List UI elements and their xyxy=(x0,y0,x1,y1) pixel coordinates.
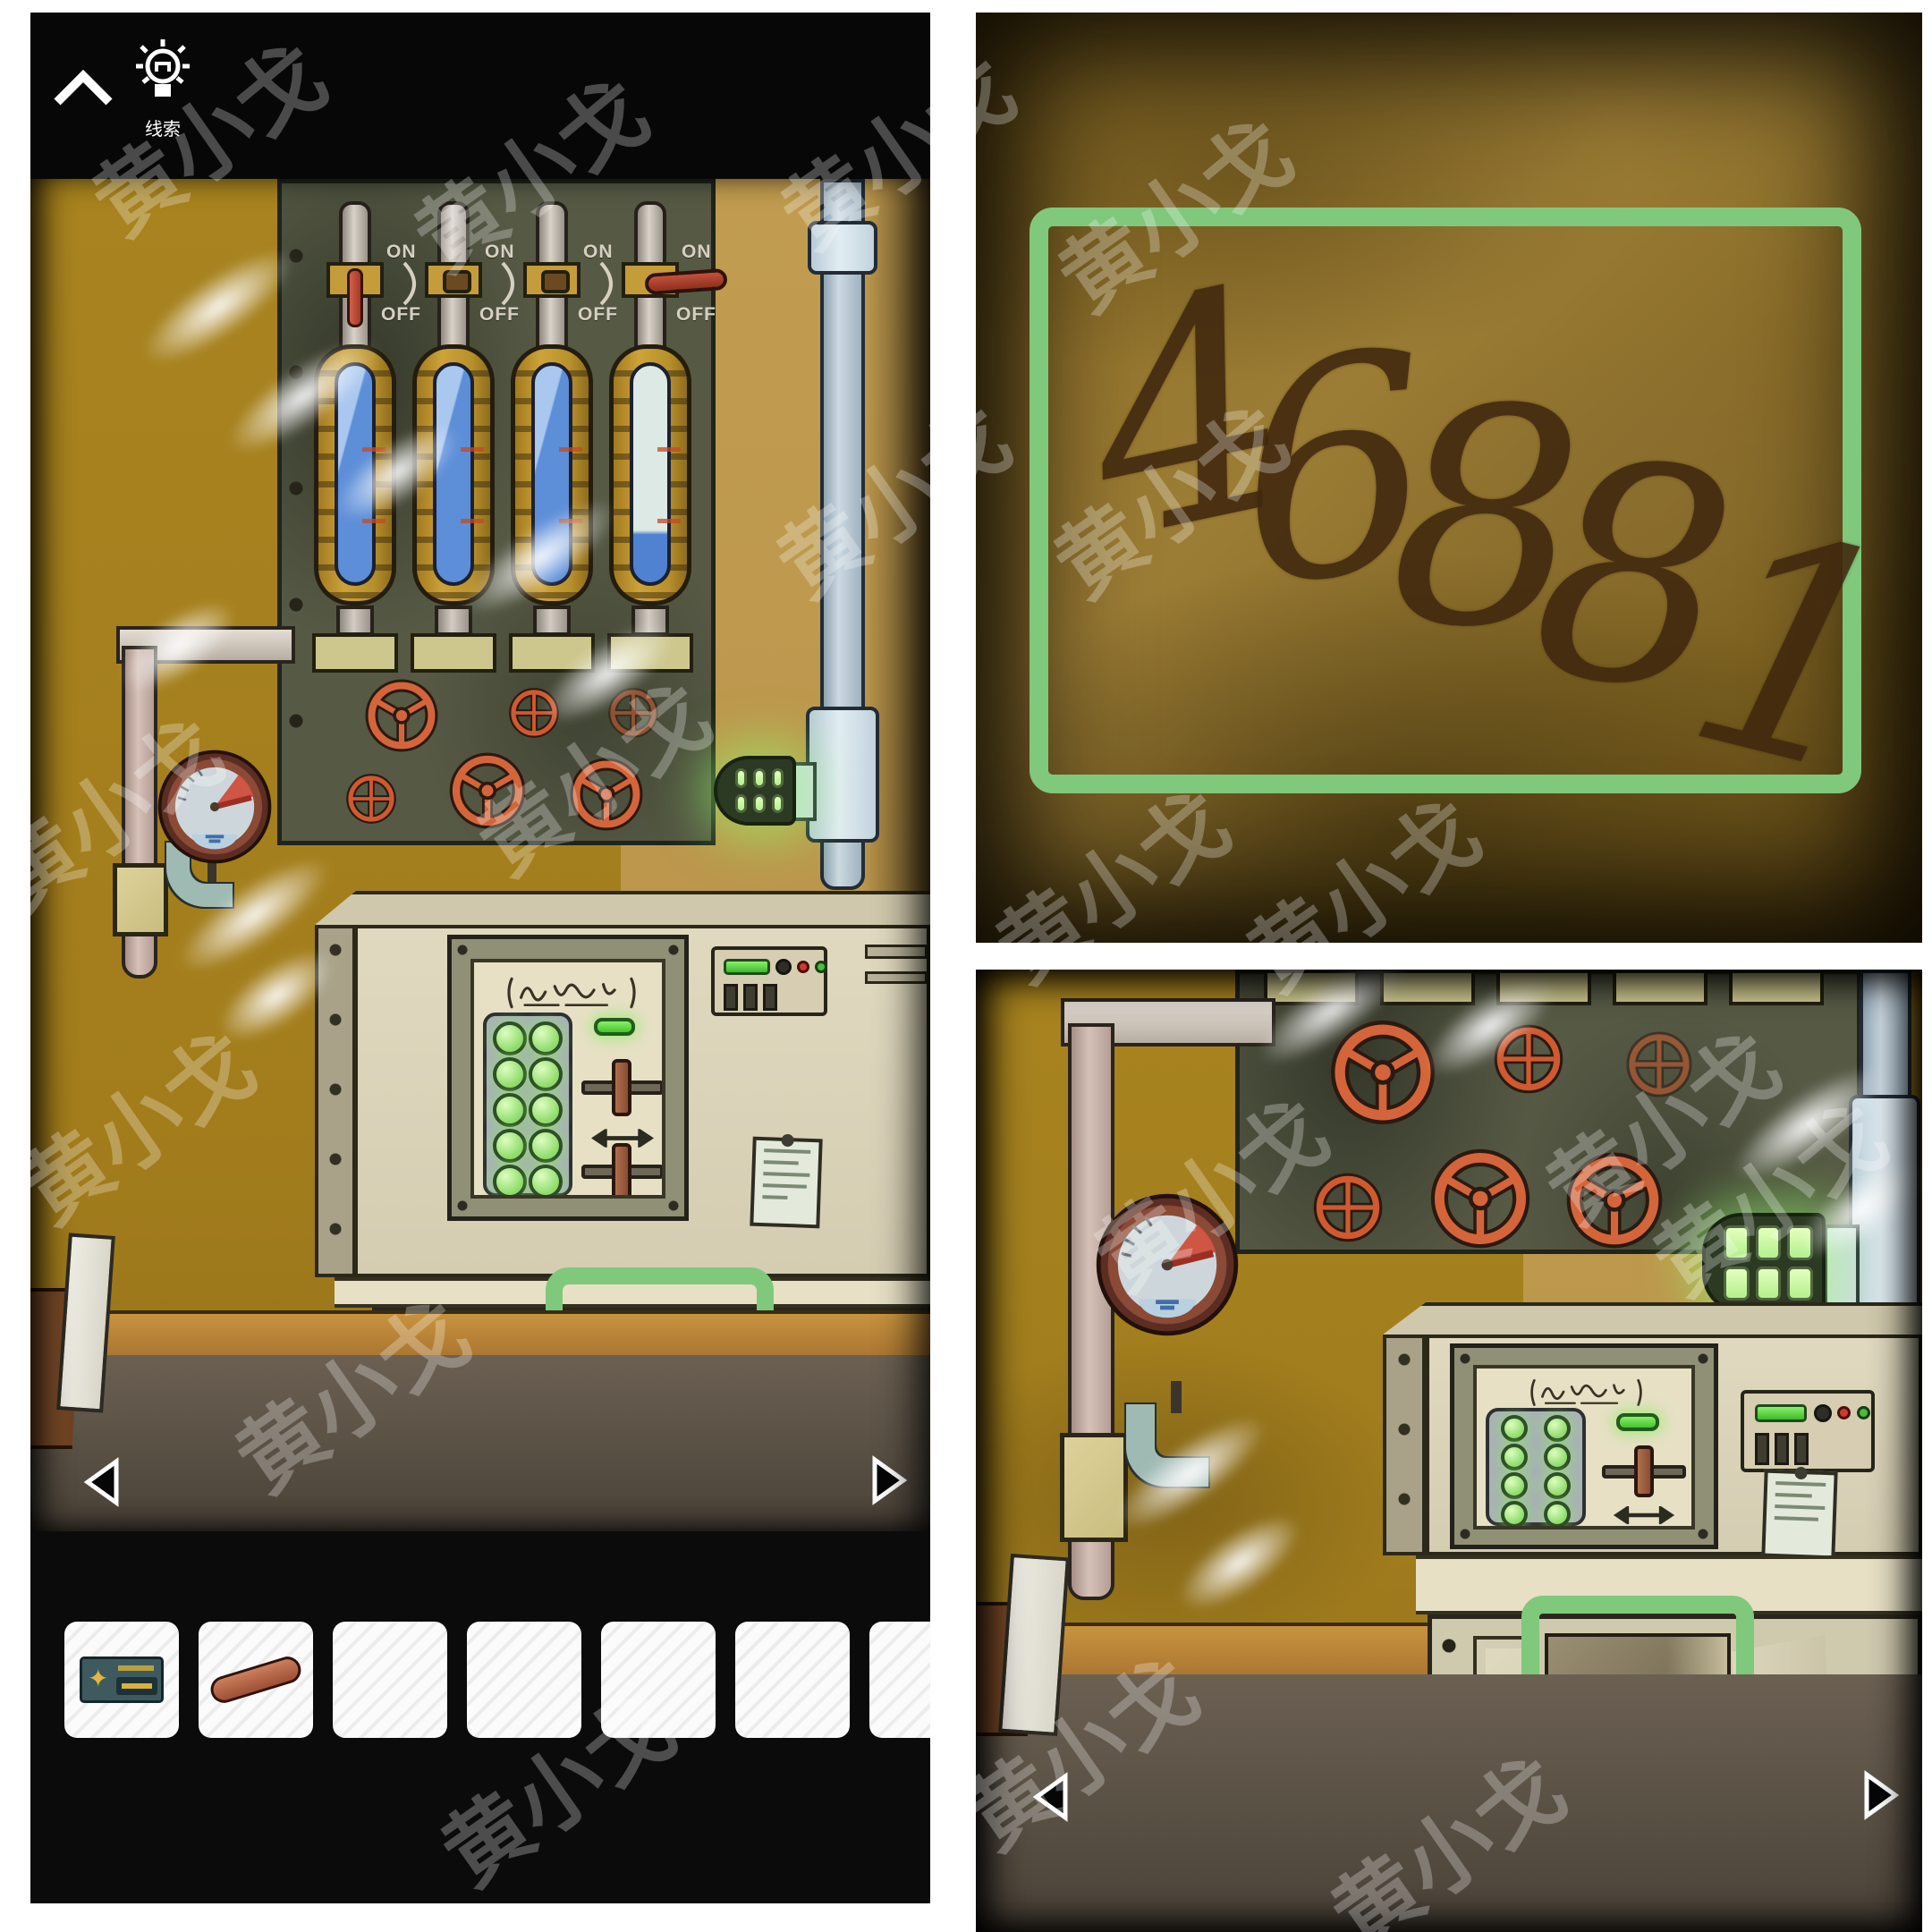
tube3-tick xyxy=(559,519,582,523)
pipe-elbow-teal xyxy=(1126,1404,1208,1487)
slider2-handle[interactable] xyxy=(612,1143,631,1199)
valve-wheel-three-spoke[interactable] xyxy=(567,755,646,834)
desk-lip xyxy=(335,1277,930,1308)
switch3-off-label: OFF xyxy=(578,304,618,326)
slider1-handle[interactable] xyxy=(1634,1445,1654,1497)
switch3-arc xyxy=(597,261,619,306)
green-button[interactable] xyxy=(493,1093,527,1127)
tube4-tick xyxy=(657,519,681,523)
tube2-knob[interactable] xyxy=(443,270,471,293)
inventory-slot-empty[interactable] xyxy=(333,1622,447,1738)
dark-switches[interactable] xyxy=(724,984,777,1011)
manifold-block xyxy=(411,633,496,673)
code-wall-screenshot: 4 6 8 8 1 xyxy=(976,13,1922,943)
manifold-block xyxy=(607,633,693,673)
tube1-tick xyxy=(362,519,386,523)
green-button[interactable] xyxy=(529,1021,563,1055)
green-indicator xyxy=(594,1018,635,1036)
valve-wheel-three-spoke[interactable] xyxy=(1563,1148,1666,1252)
manifold-block xyxy=(1264,970,1359,1005)
manifold-block xyxy=(509,633,595,673)
tube3-tick xyxy=(559,447,582,452)
tube1-tick xyxy=(362,447,386,452)
walkthrough-collage: 线索 xyxy=(0,0,1932,1932)
inventory-slot-empty[interactable] xyxy=(601,1622,716,1738)
tube3-liquid xyxy=(531,362,572,586)
pipe-collar xyxy=(808,221,877,275)
green-indicator xyxy=(1616,1413,1659,1431)
manifold-block xyxy=(1613,970,1707,1005)
valve-lever-item-icon xyxy=(208,1653,304,1706)
hint-label: 线索 xyxy=(123,114,202,140)
inventory-slot-empty[interactable] xyxy=(735,1622,850,1738)
green-button[interactable] xyxy=(1544,1501,1571,1528)
vent-slat xyxy=(865,971,928,984)
tube4-liquid xyxy=(630,362,671,586)
double-arrow-icon xyxy=(1606,1506,1682,1524)
led-green-bar xyxy=(1755,1404,1807,1422)
green-signal-lamp[interactable] xyxy=(714,756,796,826)
knob-dark[interactable] xyxy=(775,959,792,975)
tube1-liquid xyxy=(335,362,376,586)
manifold-block xyxy=(1729,970,1824,1005)
valve-wheel-three-spoke[interactable] xyxy=(362,676,441,755)
led-red xyxy=(797,961,809,973)
leaning-board[interactable] xyxy=(998,1554,1070,1736)
nav-right-arrow[interactable] xyxy=(1861,1769,1902,1821)
valve-wheel-three-spoke[interactable] xyxy=(1326,1016,1439,1129)
green-button[interactable] xyxy=(493,1165,527,1199)
switch2-arc xyxy=(499,261,521,306)
top-toolbar: 线索 xyxy=(30,13,930,179)
green-button[interactable] xyxy=(529,1057,563,1091)
green-button[interactable] xyxy=(1544,1472,1571,1499)
pinned-note[interactable] xyxy=(750,1137,822,1229)
desk-lip xyxy=(1416,1555,1922,1614)
desk-left-side xyxy=(315,925,356,1277)
handwritten-header xyxy=(487,971,657,1013)
handwritten-header xyxy=(1495,1374,1678,1410)
floor xyxy=(30,1355,930,1531)
led-green xyxy=(1857,1406,1870,1419)
pipe-junction-box xyxy=(1060,1433,1128,1542)
pinned-note[interactable] xyxy=(1761,1470,1837,1560)
tube3-knob[interactable] xyxy=(541,270,570,293)
green-button[interactable] xyxy=(1501,1501,1528,1528)
valve-wheel-cross[interactable] xyxy=(1309,1168,1387,1247)
green-button[interactable] xyxy=(1501,1444,1528,1470)
valve-wheel-cross[interactable] xyxy=(1489,1020,1568,1098)
green-button[interactable] xyxy=(1501,1472,1528,1499)
nav-right-arrow[interactable] xyxy=(869,1454,911,1506)
tube2-connector xyxy=(435,606,472,636)
green-button-grid xyxy=(483,1013,572,1197)
slider1-handle[interactable] xyxy=(612,1059,631,1116)
manifold-block xyxy=(1496,970,1591,1005)
green-button[interactable] xyxy=(529,1165,563,1199)
switch1-off-label: OFF xyxy=(381,304,421,326)
dark-switches[interactable] xyxy=(1755,1433,1809,1465)
metal-plate-item-icon: ✦ xyxy=(80,1657,164,1703)
desk-top-face xyxy=(315,891,930,925)
led-red xyxy=(1837,1406,1851,1419)
manifold-block xyxy=(312,633,398,673)
knob-dark[interactable] xyxy=(1814,1404,1832,1422)
manifold-block xyxy=(1380,970,1475,1005)
green-button[interactable] xyxy=(1544,1444,1571,1470)
green-signal-lamp[interactable] xyxy=(1702,1213,1826,1313)
green-button[interactable] xyxy=(493,1021,527,1055)
inventory-slot-1[interactable]: ✦ xyxy=(64,1622,179,1738)
valve-wheel-three-spoke[interactable] xyxy=(1427,1145,1534,1252)
pipe-junction-box xyxy=(113,863,168,936)
inventory-bar: ✦ xyxy=(64,1622,930,1738)
star-icon: ✦ xyxy=(88,1666,108,1691)
green-button[interactable] xyxy=(529,1129,563,1163)
switch3-on-label: ON xyxy=(583,241,614,263)
inventory-slot-empty[interactable] xyxy=(467,1622,581,1738)
tube4-tick xyxy=(657,447,681,452)
small-led-panel[interactable] xyxy=(711,946,827,1016)
pressure-gauge[interactable] xyxy=(1096,1193,1239,1336)
switch2-on-label: ON xyxy=(485,241,515,263)
tube1-red-lever[interactable] xyxy=(347,268,363,327)
valve-wheel-cross[interactable] xyxy=(505,684,563,741)
switch1-on-label: ON xyxy=(386,241,417,263)
nav-left-arrow[interactable] xyxy=(80,1456,122,1508)
tube3-connector xyxy=(533,606,571,636)
green-button[interactable] xyxy=(493,1057,527,1091)
pressure-gauge[interactable] xyxy=(157,750,272,864)
valve-wheel-cross-faint[interactable] xyxy=(605,684,662,741)
green-button-grid xyxy=(1486,1408,1586,1526)
inventory-slot-empty[interactable] xyxy=(869,1622,930,1738)
valve-wheel-three-spoke[interactable] xyxy=(446,750,529,832)
inventory-slot-2[interactable] xyxy=(199,1622,313,1738)
lamp-connector xyxy=(1824,1224,1860,1307)
pipe-sleeve xyxy=(806,707,879,843)
switch1-arc xyxy=(401,261,422,306)
gauge-stem xyxy=(1171,1381,1182,1413)
valve-wheel-cross[interactable] xyxy=(343,770,400,827)
control-panel xyxy=(1473,1365,1695,1529)
chevron-up-icon[interactable] xyxy=(52,68,114,109)
tube4-connector xyxy=(631,606,669,636)
green-button[interactable] xyxy=(1501,1415,1528,1442)
nav-left-arrow[interactable] xyxy=(1030,1771,1071,1823)
tube2-tick xyxy=(461,519,484,523)
valve-wheel-cross-faint[interactable] xyxy=(1622,1027,1697,1102)
floor xyxy=(976,1674,1922,1932)
handwritten-code: 4 6 8 8 1 xyxy=(1092,236,1843,809)
desk-left-side xyxy=(1383,1335,1426,1555)
open-cabinet-screenshot xyxy=(976,970,1922,1932)
green-button[interactable] xyxy=(529,1093,563,1127)
tube2-liquid xyxy=(433,362,474,586)
led-green xyxy=(815,961,827,973)
small-led-panel[interactable] xyxy=(1741,1390,1875,1472)
green-button[interactable] xyxy=(493,1129,527,1163)
switch4-off-label: OFF xyxy=(676,304,716,326)
green-button[interactable] xyxy=(1544,1415,1571,1442)
led-green-bar xyxy=(724,959,770,975)
boiler-room-scene: ON OFF ON OFF ON OFF ON OFF xyxy=(30,179,930,1531)
control-panel xyxy=(470,959,665,1199)
gauge-board-screws xyxy=(281,233,311,787)
desk-top-face xyxy=(1383,1302,1922,1335)
vent-slat xyxy=(865,945,928,959)
game-screen-main: 线索 xyxy=(30,13,930,1903)
tube1-connector xyxy=(336,606,374,636)
switch2-off-label: OFF xyxy=(479,304,520,326)
switch4-on-label: ON xyxy=(682,241,712,263)
tube2-tick xyxy=(461,447,484,452)
hint-bulb-icon[interactable] xyxy=(131,36,195,111)
